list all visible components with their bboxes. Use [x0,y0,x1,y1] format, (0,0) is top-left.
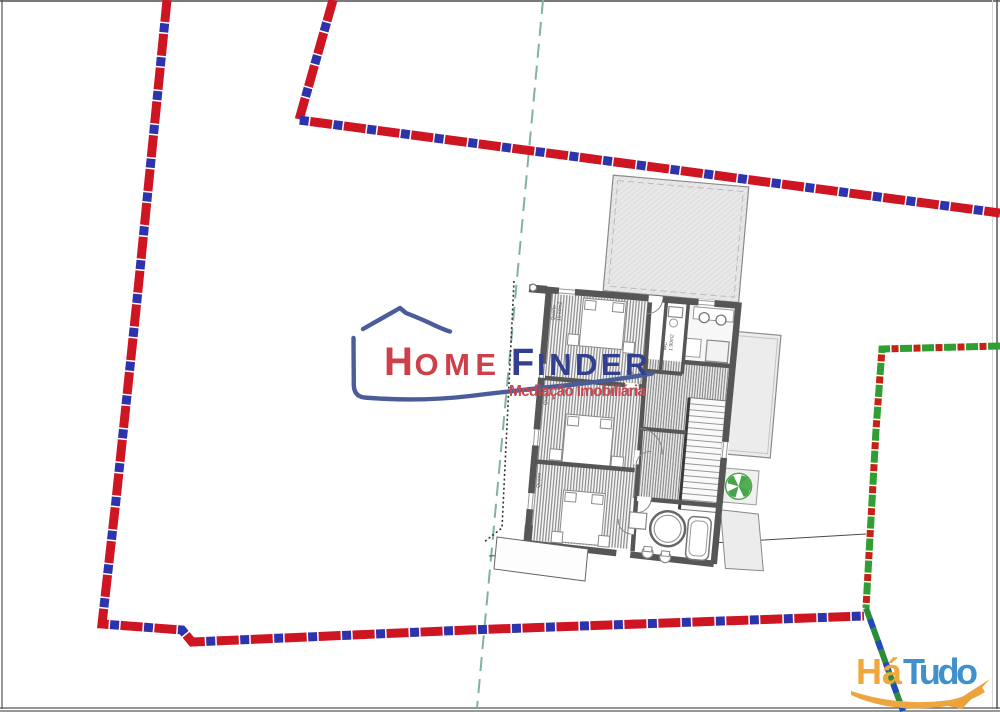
svg-text:Tudo: Tudo [903,651,978,692]
svg-text:Mediação Imobiliária: Mediação Imobiliária [509,383,646,400]
svg-text:F: F [511,342,534,384]
svg-text:OME: OME [415,347,502,382]
svg-text:INDER: INDER [537,347,651,382]
svg-text:H: H [384,340,413,384]
svg-text:Há: Há [856,651,903,692]
